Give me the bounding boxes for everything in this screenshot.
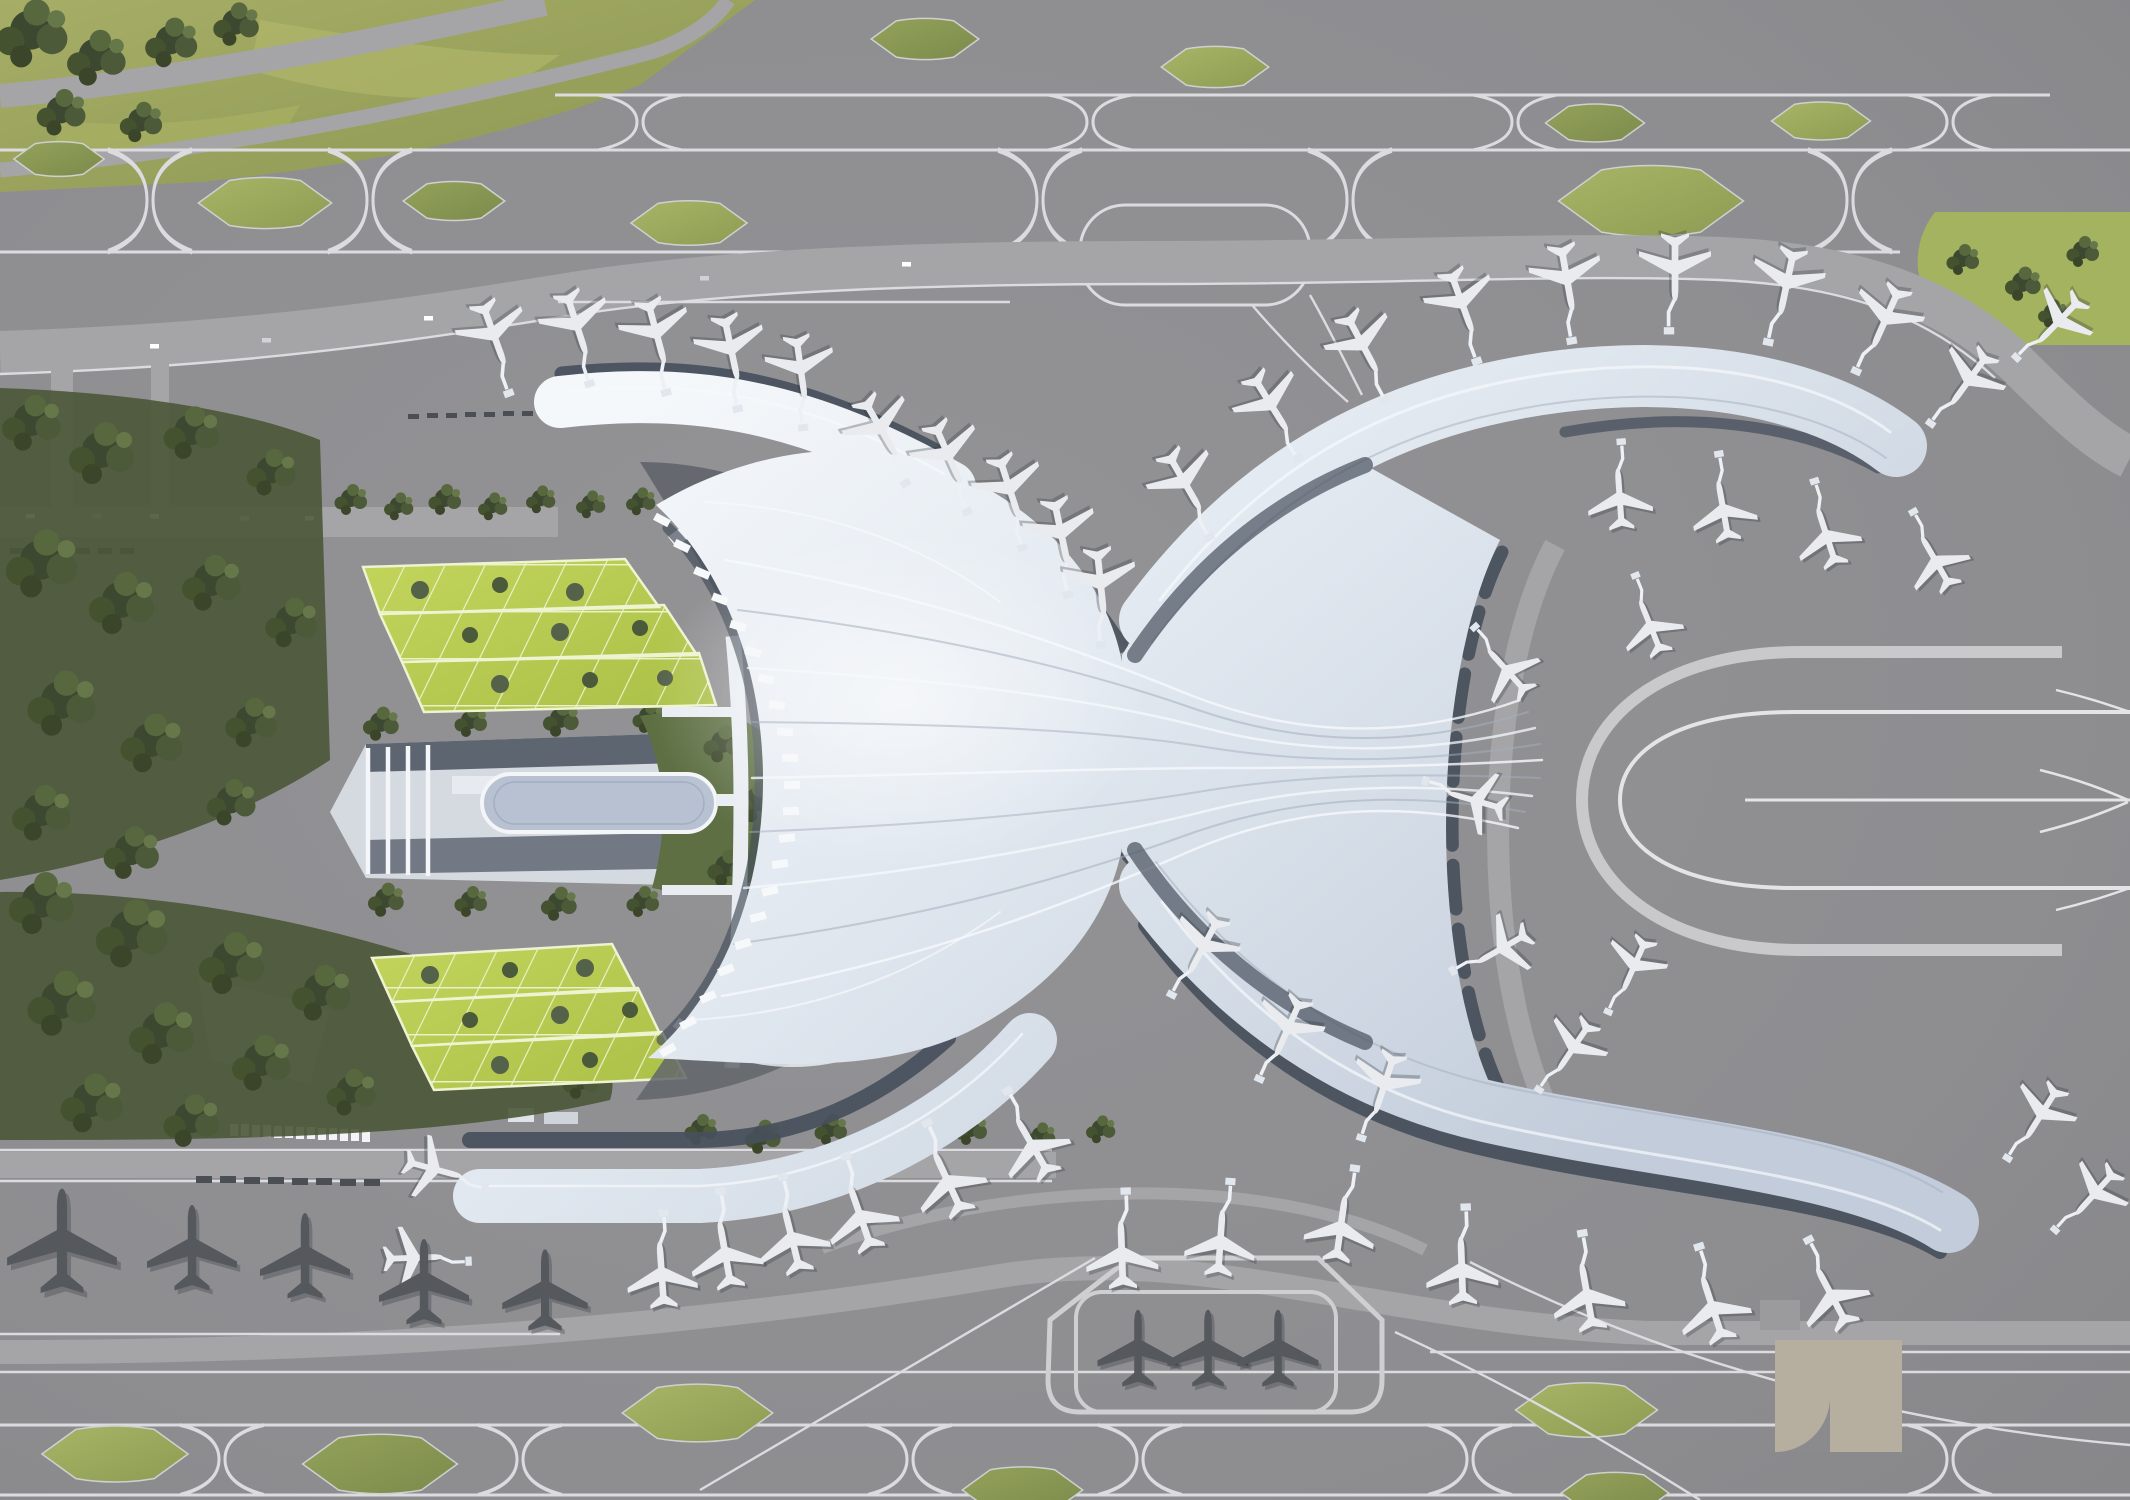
rendering-canvas xyxy=(0,0,2130,1500)
airport-aerial-rendering xyxy=(0,0,2130,1500)
